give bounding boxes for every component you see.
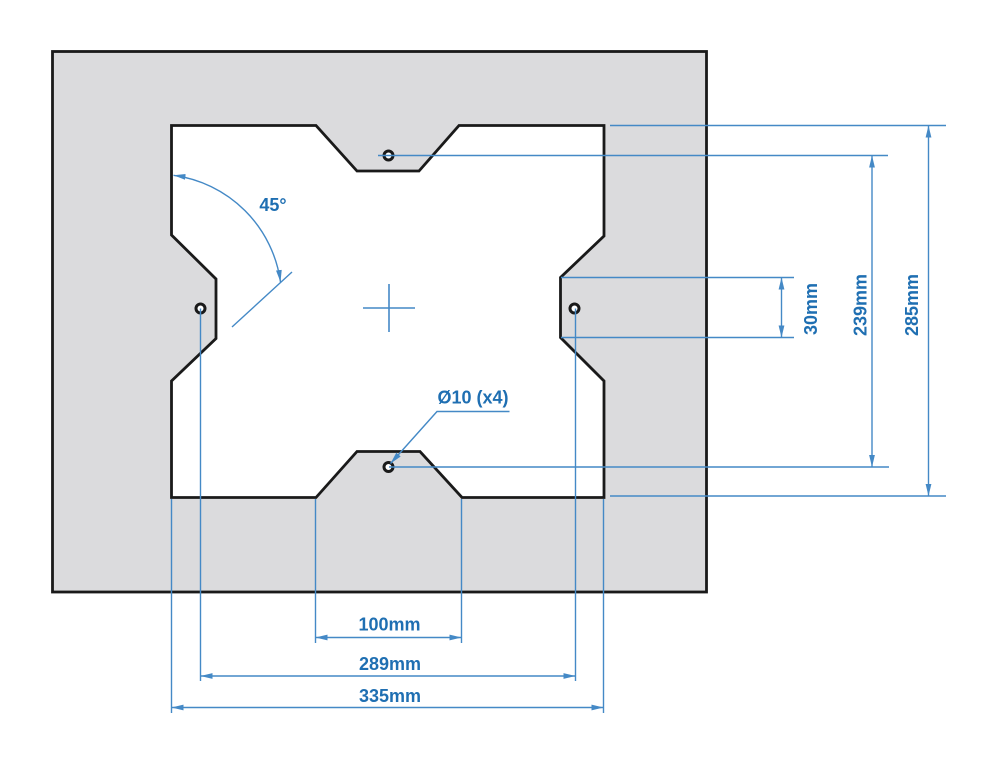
svg-text:Ø10 (x4): Ø10 (x4) [437, 388, 508, 408]
svg-text:30mm: 30mm [801, 283, 821, 335]
svg-text:239mm: 239mm [851, 274, 871, 336]
svg-text:285mm: 285mm [902, 274, 922, 336]
svg-text:100mm: 100mm [358, 615, 420, 635]
svg-text:45°: 45° [259, 195, 286, 215]
svg-text:335mm: 335mm [359, 686, 421, 706]
svg-text:289mm: 289mm [359, 654, 421, 674]
